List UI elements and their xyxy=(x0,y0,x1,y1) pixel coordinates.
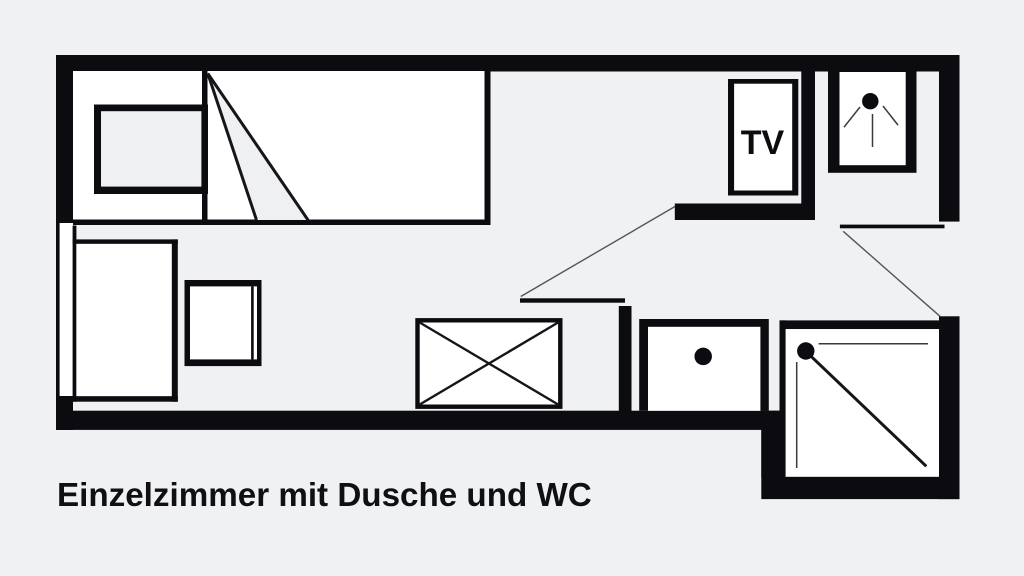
svg-text:TV: TV xyxy=(741,124,785,162)
svg-text:Einzelzimmer mit Dusche und WC: Einzelzimmer mit Dusche und WC xyxy=(57,477,592,514)
